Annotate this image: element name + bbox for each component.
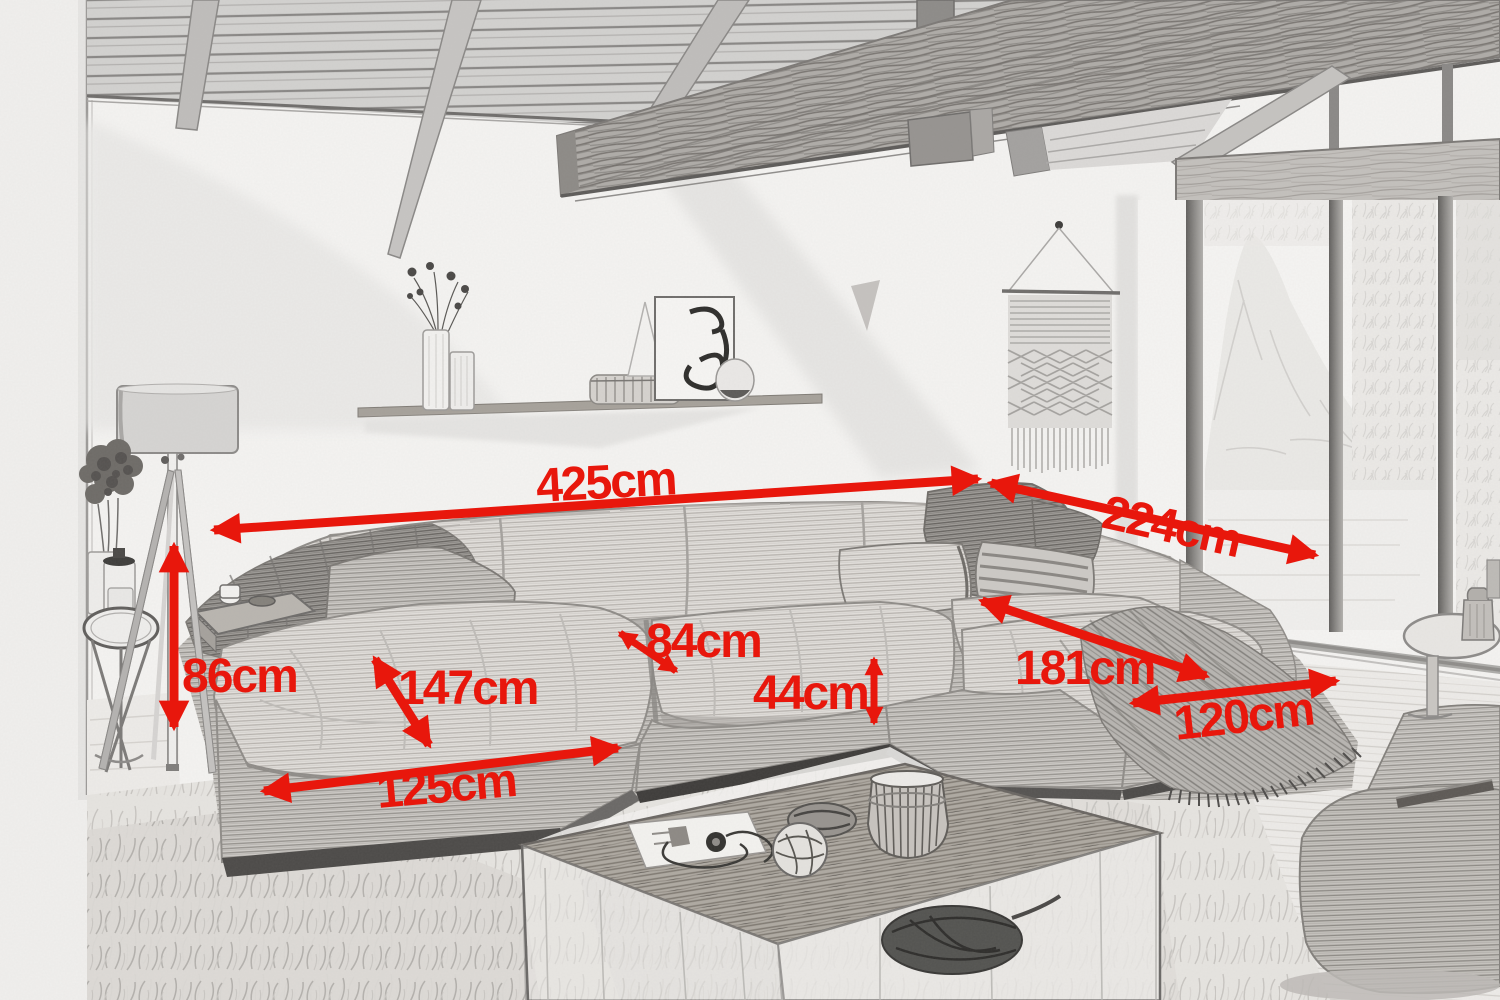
svg-text:44cm: 44cm	[753, 667, 868, 720]
svg-text:86cm: 86cm	[182, 650, 297, 703]
svg-text:425cm: 425cm	[535, 452, 677, 513]
svg-text:181cm: 181cm	[1015, 642, 1154, 695]
svg-text:84cm: 84cm	[646, 615, 761, 668]
svg-text:147cm: 147cm	[398, 662, 537, 715]
